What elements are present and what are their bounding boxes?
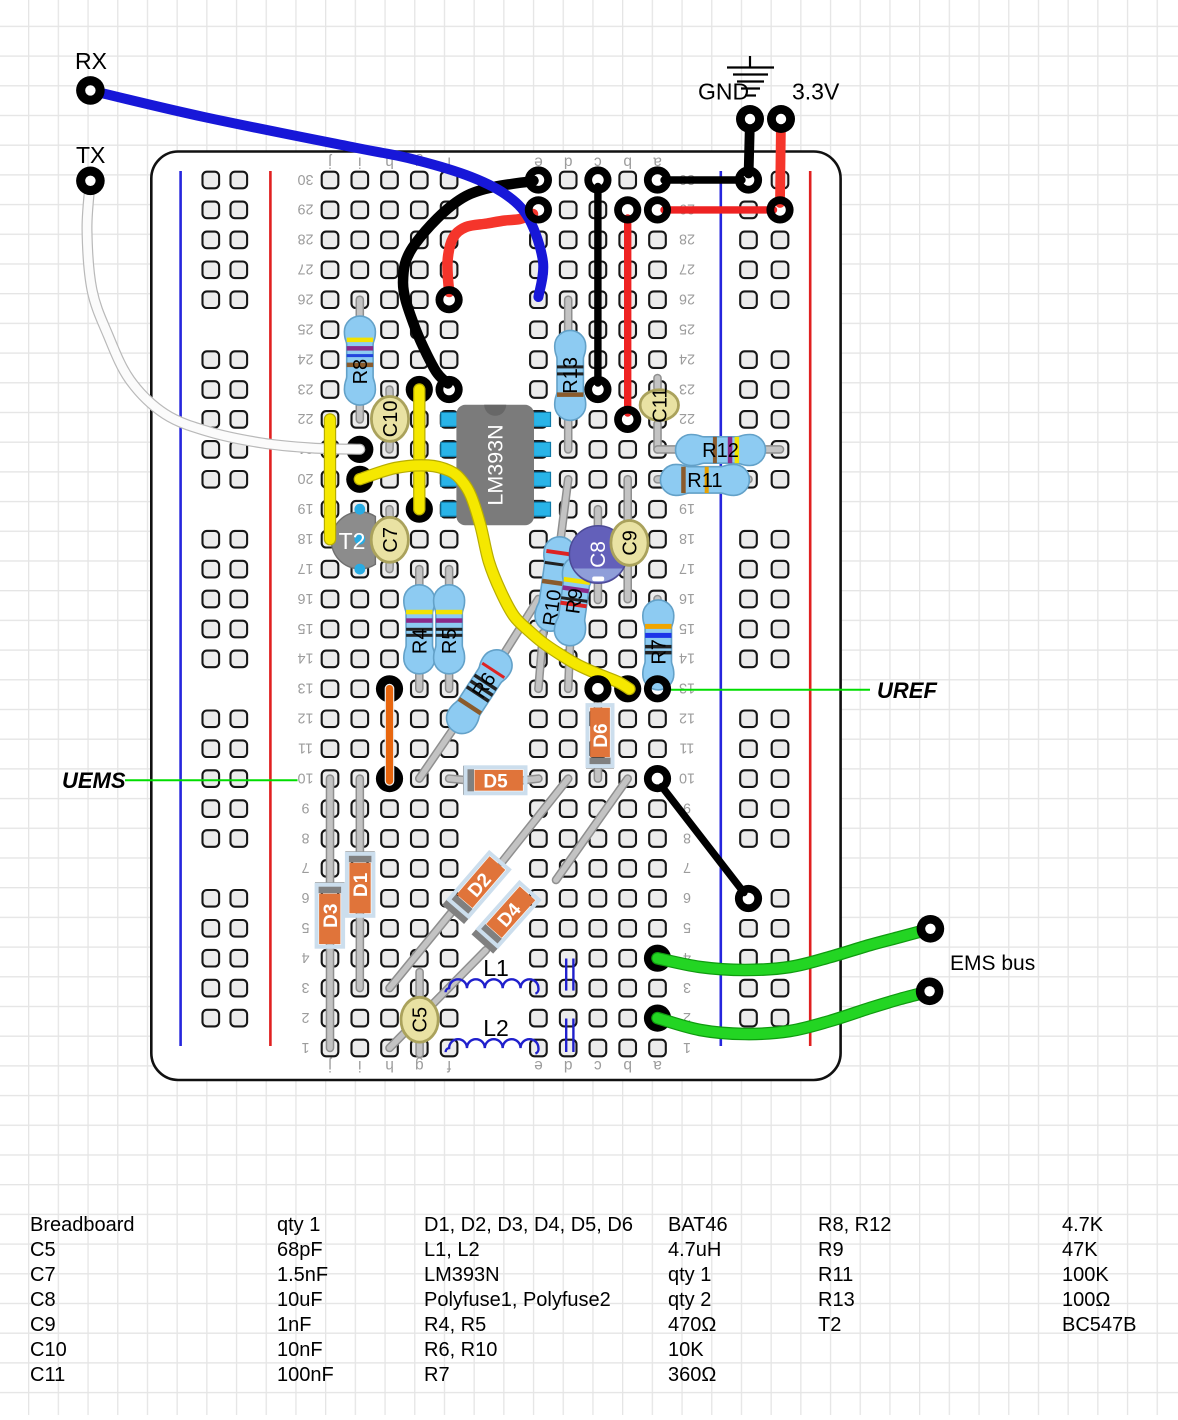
svg-text:5: 5 <box>683 919 691 935</box>
svg-text:Polyfuse1, Polyfuse2: Polyfuse1, Polyfuse2 <box>424 1289 611 1311</box>
svg-text:6: 6 <box>301 889 309 905</box>
svg-text:14: 14 <box>679 650 695 666</box>
svg-text:15: 15 <box>298 620 314 636</box>
svg-text:f: f <box>446 1057 451 1074</box>
svg-text:26: 26 <box>298 291 314 307</box>
svg-text:6: 6 <box>683 889 691 905</box>
svg-text:C11: C11 <box>30 1364 65 1386</box>
svg-text:27: 27 <box>298 261 314 277</box>
svg-text:29: 29 <box>298 201 314 217</box>
svg-text:R8, R12: R8, R12 <box>818 1214 891 1236</box>
svg-text:28: 28 <box>298 231 314 247</box>
svg-text:D1: D1 <box>351 872 372 897</box>
svg-text:R13: R13 <box>560 357 582 394</box>
svg-text:16: 16 <box>298 590 314 606</box>
svg-text:C8: C8 <box>587 541 610 568</box>
svg-text:23: 23 <box>679 380 695 396</box>
svg-text:1: 1 <box>683 1039 691 1055</box>
svg-text:Breadboard: Breadboard <box>30 1214 135 1236</box>
svg-text:10: 10 <box>298 769 314 785</box>
svg-text:11: 11 <box>298 740 313 756</box>
svg-text:16: 16 <box>679 590 695 606</box>
svg-text:C10: C10 <box>380 401 402 438</box>
svg-text:22: 22 <box>298 410 314 426</box>
svg-text:D6: D6 <box>591 723 612 747</box>
svg-text:100Ω: 100Ω <box>1062 1289 1110 1311</box>
svg-text:8: 8 <box>683 829 691 845</box>
svg-text:28: 28 <box>679 231 695 247</box>
svg-text:C9: C9 <box>620 530 642 556</box>
svg-text:30: 30 <box>298 171 314 187</box>
svg-text:4: 4 <box>301 949 309 965</box>
svg-text:26: 26 <box>679 291 695 307</box>
svg-text:14: 14 <box>298 650 314 666</box>
svg-text:R4: R4 <box>409 629 431 655</box>
svg-text:i: i <box>358 1057 361 1074</box>
svg-text:15: 15 <box>679 620 695 636</box>
svg-text:C9: C9 <box>30 1314 56 1336</box>
svg-text:LM393N: LM393N <box>484 424 508 505</box>
svg-text:D3: D3 <box>321 904 342 928</box>
svg-text:b: b <box>623 1057 632 1074</box>
svg-text:2: 2 <box>301 1009 309 1025</box>
svg-text:23: 23 <box>298 380 314 396</box>
svg-text:3: 3 <box>301 979 309 995</box>
svg-text:19: 19 <box>298 500 314 516</box>
svg-text:LM393N: LM393N <box>424 1264 500 1286</box>
svg-text:d: d <box>564 154 573 171</box>
svg-text:R13: R13 <box>818 1289 855 1311</box>
svg-text:R7: R7 <box>648 639 670 665</box>
svg-text:12: 12 <box>679 710 695 726</box>
svg-text:T2: T2 <box>339 528 366 554</box>
svg-text:L1: L1 <box>483 955 509 981</box>
svg-text:3: 3 <box>683 979 691 995</box>
svg-text:EMS bus: EMS bus <box>950 952 1035 975</box>
svg-text:C10: C10 <box>30 1339 67 1361</box>
svg-text:13: 13 <box>679 680 695 696</box>
svg-text:qty 2: qty 2 <box>668 1289 711 1311</box>
svg-text:h: h <box>385 1057 394 1074</box>
svg-text:R4, R5: R4, R5 <box>424 1314 486 1336</box>
svg-text:17: 17 <box>679 560 695 576</box>
svg-text:C5: C5 <box>30 1239 56 1261</box>
svg-text:R9: R9 <box>818 1239 844 1261</box>
svg-text:3.3V: 3.3V <box>792 79 840 105</box>
svg-text:1: 1 <box>301 1039 309 1055</box>
svg-text:R11: R11 <box>687 470 722 492</box>
svg-text:24: 24 <box>298 350 314 366</box>
svg-text:R7: R7 <box>424 1364 450 1386</box>
svg-text:R9: R9 <box>562 587 587 615</box>
svg-text:470Ω: 470Ω <box>668 1314 716 1336</box>
svg-text:BC547B: BC547B <box>1062 1314 1137 1336</box>
svg-text:10uF: 10uF <box>277 1289 323 1311</box>
svg-text:10: 10 <box>679 769 695 785</box>
svg-text:5: 5 <box>301 919 309 935</box>
svg-text:R12: R12 <box>702 440 739 462</box>
svg-text:RX: RX <box>75 48 107 74</box>
svg-text:R5: R5 <box>439 629 461 655</box>
svg-text:18: 18 <box>679 530 695 546</box>
svg-text:4.7K: 4.7K <box>1062 1214 1104 1236</box>
svg-text:7: 7 <box>683 859 691 875</box>
svg-text:a: a <box>653 1057 662 1074</box>
svg-text:c: c <box>594 1057 602 1074</box>
svg-text:27: 27 <box>679 261 695 277</box>
svg-text:47K: 47K <box>1062 1239 1098 1261</box>
svg-text:11: 11 <box>680 740 695 756</box>
svg-text:C8: C8 <box>30 1289 56 1311</box>
svg-text:j: j <box>328 1057 332 1074</box>
svg-text:68pF: 68pF <box>277 1239 323 1261</box>
svg-text:22: 22 <box>679 410 695 426</box>
svg-text:TX: TX <box>76 142 105 168</box>
svg-text:C7: C7 <box>380 527 402 553</box>
svg-text:UEMS: UEMS <box>62 768 126 793</box>
svg-text:d: d <box>564 1057 573 1074</box>
svg-text:R8: R8 <box>350 359 372 385</box>
svg-text:g: g <box>415 1057 424 1074</box>
svg-text:360Ω: 360Ω <box>668 1364 716 1386</box>
svg-text:L2: L2 <box>483 1015 509 1041</box>
svg-text:1.5nF: 1.5nF <box>277 1264 328 1286</box>
svg-text:UREF: UREF <box>877 678 937 703</box>
svg-text:100K: 100K <box>1062 1264 1109 1286</box>
svg-text:12: 12 <box>298 710 314 726</box>
svg-text:T2: T2 <box>818 1314 841 1336</box>
svg-text:24: 24 <box>679 350 695 366</box>
svg-text:20: 20 <box>298 470 314 486</box>
svg-text:17: 17 <box>298 560 314 576</box>
svg-text:i: i <box>358 154 361 171</box>
svg-text:qty 1: qty 1 <box>277 1214 320 1236</box>
svg-text:D5: D5 <box>483 771 508 792</box>
svg-text:8: 8 <box>301 829 309 845</box>
svg-text:9: 9 <box>301 799 309 815</box>
svg-text:13: 13 <box>298 680 314 696</box>
svg-text:25: 25 <box>679 321 695 337</box>
svg-text:BAT46: BAT46 <box>668 1214 728 1236</box>
svg-text:1nF: 1nF <box>277 1314 311 1336</box>
svg-text:4.7uH: 4.7uH <box>668 1239 721 1261</box>
svg-text:100nF: 100nF <box>277 1364 334 1386</box>
svg-text:b: b <box>623 154 632 171</box>
svg-text:18: 18 <box>298 530 314 546</box>
svg-text:R6, R10: R6, R10 <box>424 1339 497 1361</box>
svg-text:C11: C11 <box>649 387 671 422</box>
svg-text:10K: 10K <box>668 1339 704 1361</box>
svg-text:7: 7 <box>301 859 309 875</box>
svg-text:R11: R11 <box>818 1264 853 1286</box>
svg-text:19: 19 <box>679 500 695 516</box>
svg-text:C5: C5 <box>410 1007 432 1033</box>
svg-text:j: j <box>328 154 332 171</box>
svg-text:e: e <box>534 1057 543 1074</box>
svg-text:C7: C7 <box>30 1264 56 1286</box>
svg-text:25: 25 <box>298 321 314 337</box>
svg-text:10nF: 10nF <box>277 1339 323 1361</box>
svg-text:L1, L2: L1, L2 <box>424 1239 480 1261</box>
svg-text:GND: GND <box>698 79 749 105</box>
svg-text:qty 1: qty 1 <box>668 1264 711 1286</box>
svg-text:D1, D2, D3, D4, D5, D6: D1, D2, D3, D4, D5, D6 <box>424 1214 633 1236</box>
